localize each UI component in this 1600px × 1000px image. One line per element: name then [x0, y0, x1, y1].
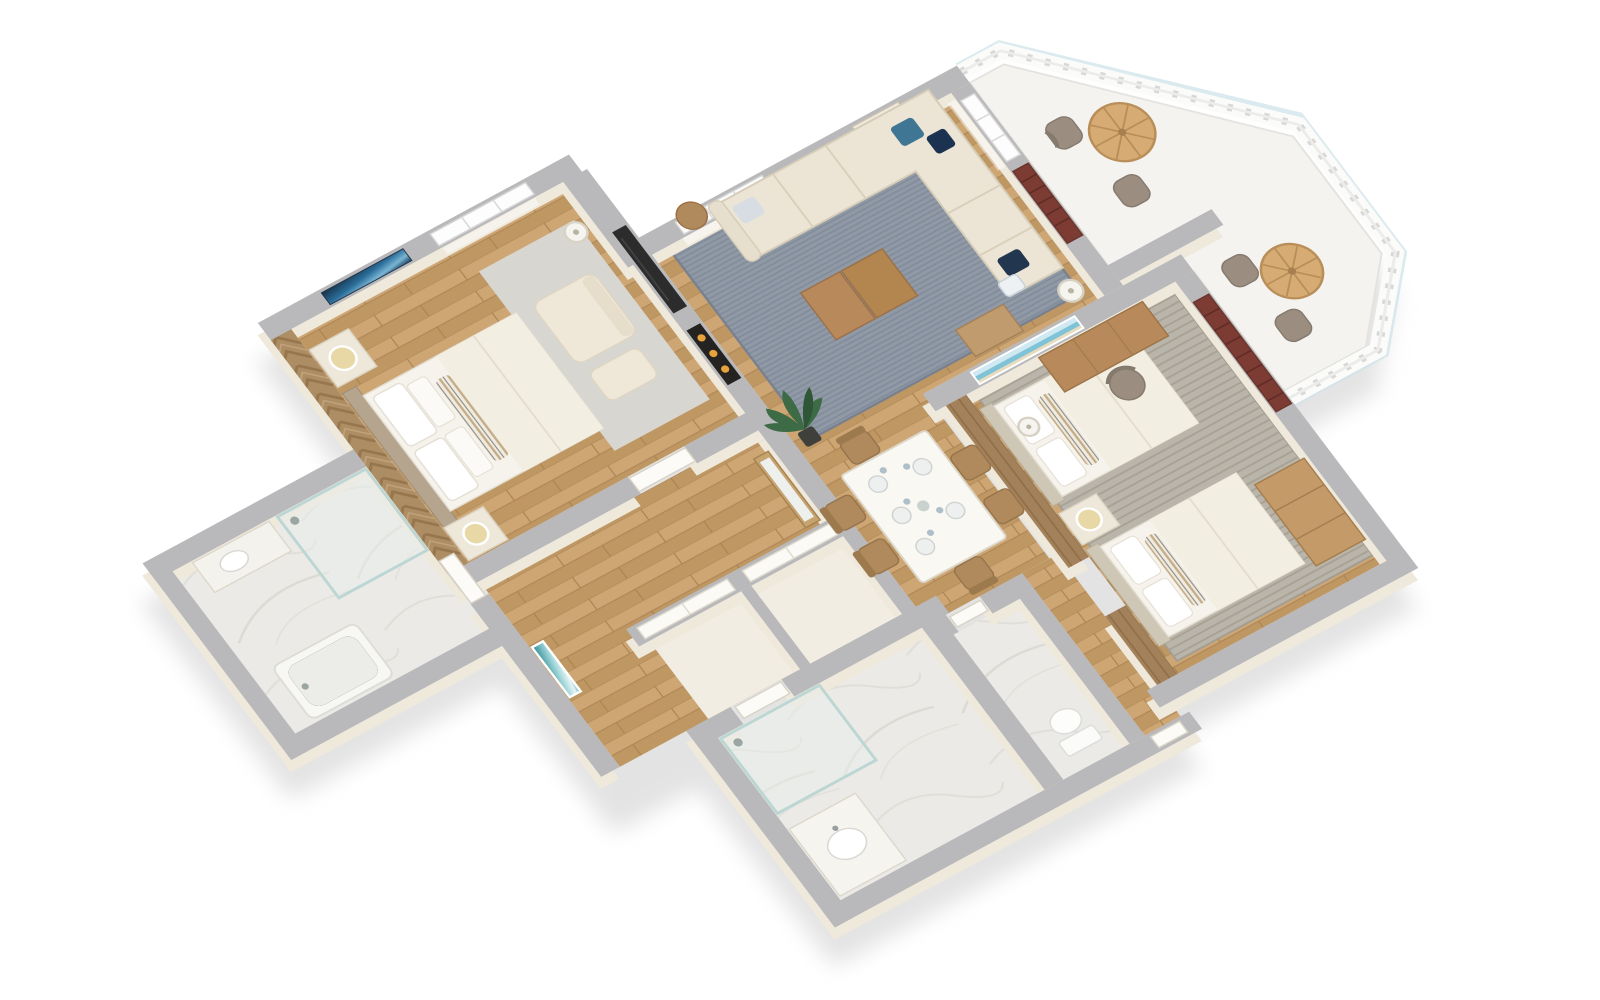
floorplan-stage: [0, 0, 1600, 1000]
floorplan-3d-render: [0, 0, 1600, 1000]
apartment-plan: [25, 0, 1600, 1000]
